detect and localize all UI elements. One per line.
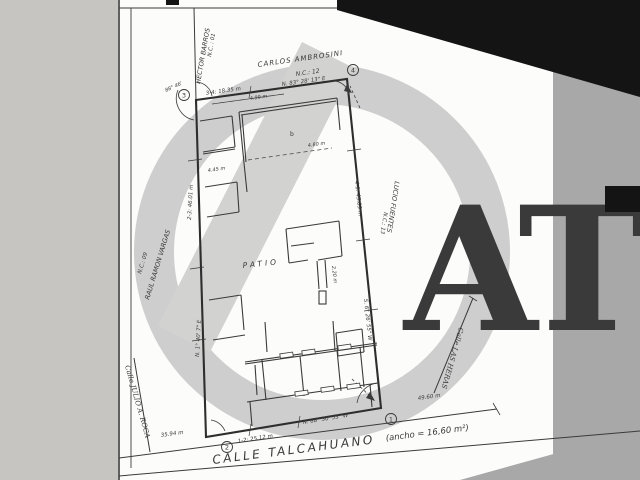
site-plan-drawing: AT xyxy=(0,0,640,480)
room-label: b xyxy=(290,131,294,138)
corner-label-1: 1 xyxy=(389,416,393,424)
watermark-letters: AT xyxy=(402,168,640,371)
corner-label-4: 4 xyxy=(351,67,355,75)
corner-label-3: 3 xyxy=(182,92,186,100)
scan-black-right-notch xyxy=(605,186,640,212)
scanned-survey-plan: AT xyxy=(0,0,640,480)
scan-black-top-tick xyxy=(166,0,179,5)
